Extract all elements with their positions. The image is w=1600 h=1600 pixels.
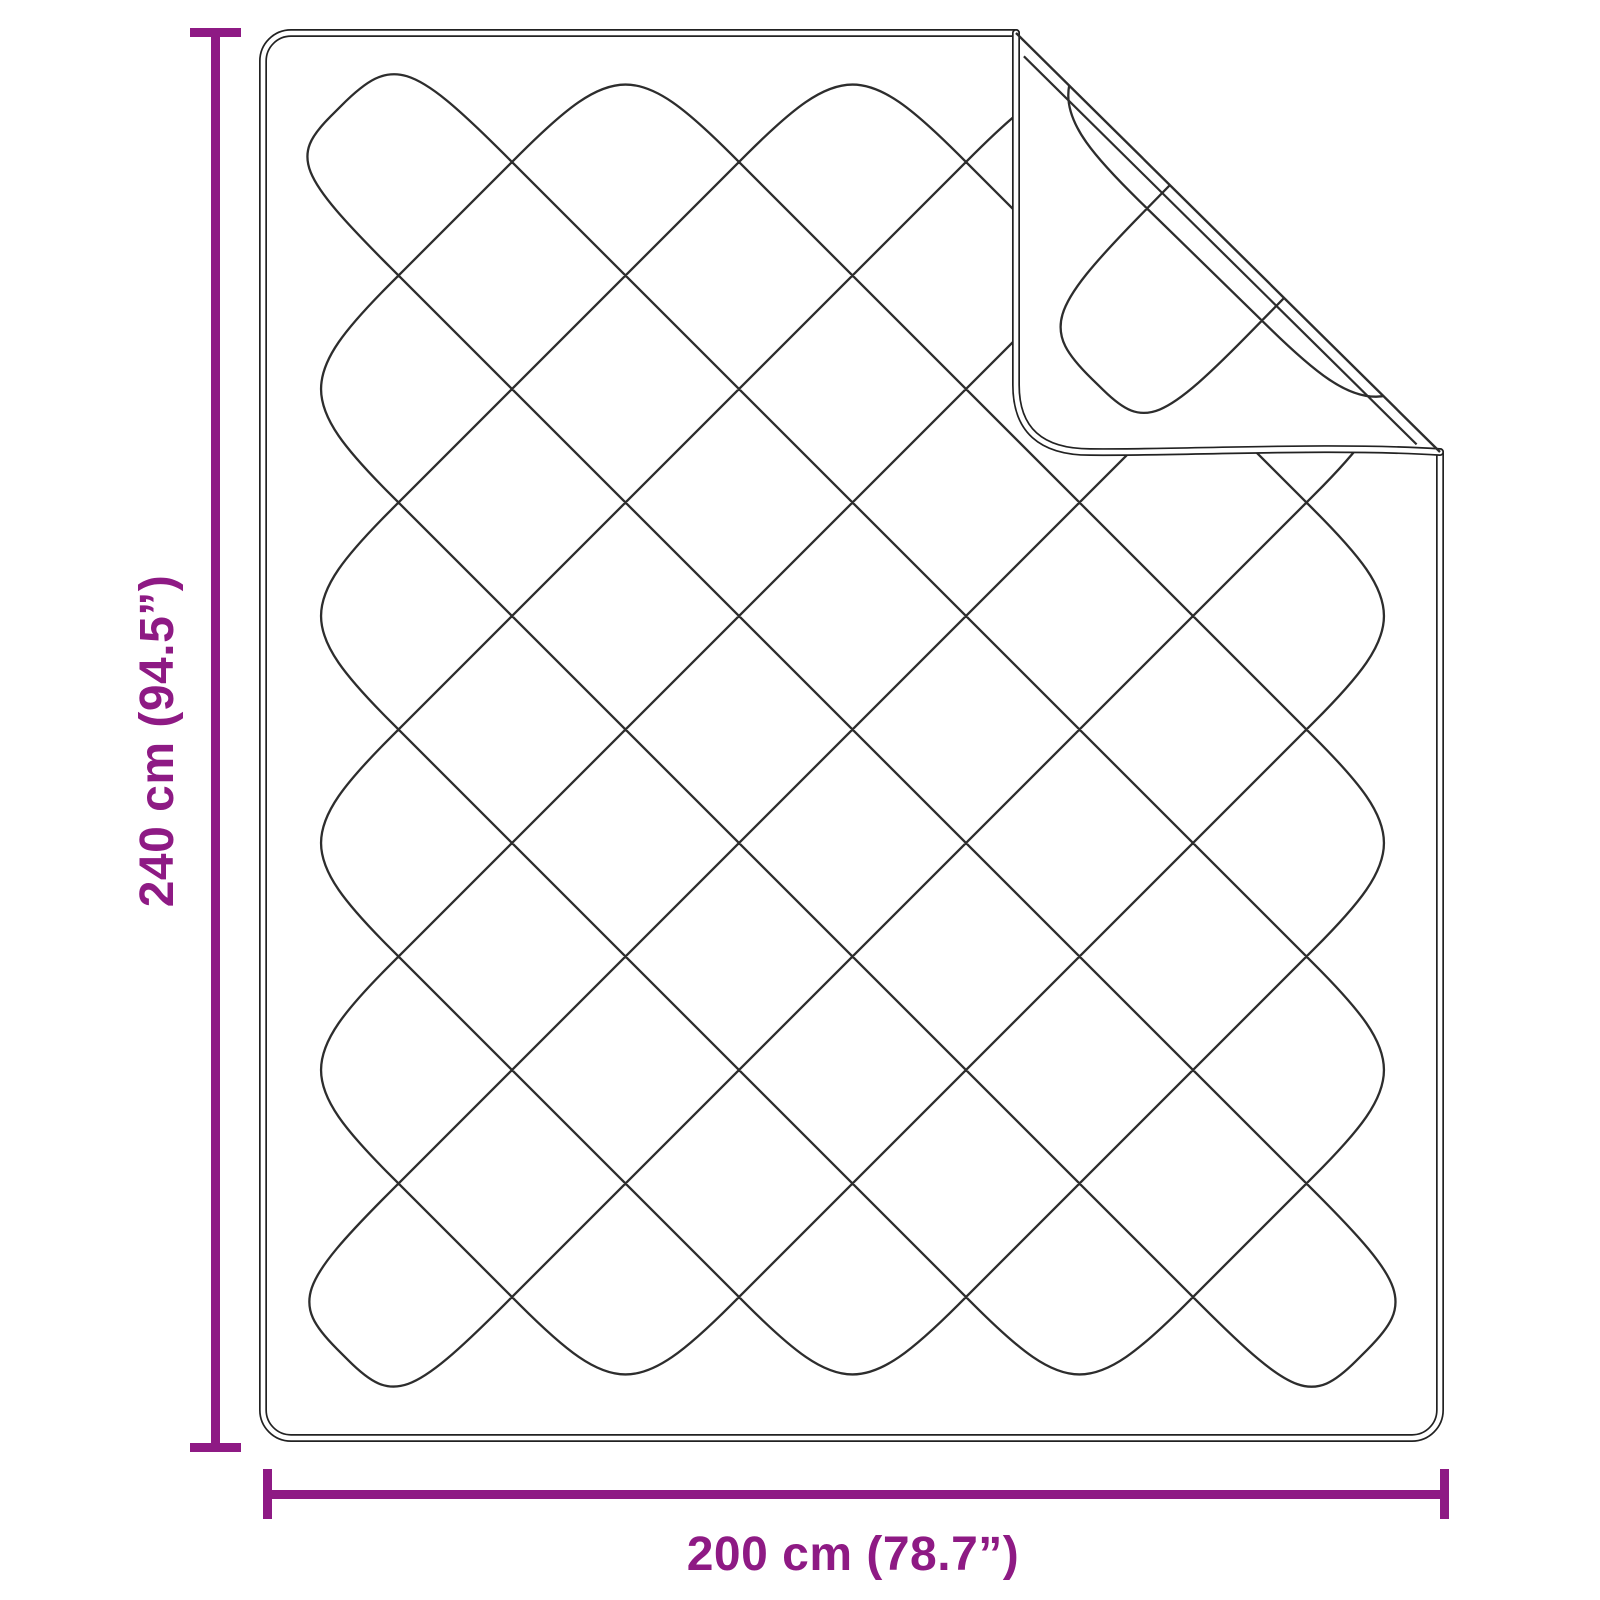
horizontal-dimension-cap-left	[263, 1469, 272, 1519]
vertical-dimension-cap-top	[190, 28, 241, 37]
height-dimension-label: 240 cm (94.5”)	[124, 441, 192, 1041]
product-dimension-diagram: 240 cm (94.5”) 200 cm (78.7”)	[0, 0, 1600, 1600]
quilted-blanket-drawing	[0, 0, 1600, 1600]
vertical-dimension-cap-bottom	[190, 1443, 241, 1452]
horizontal-dimension-line	[263, 1490, 1449, 1499]
horizontal-dimension-cap-right	[1440, 1469, 1449, 1519]
width-dimension-label: 200 cm (78.7”)	[553, 1524, 1153, 1586]
vertical-dimension-line	[211, 28, 220, 1452]
